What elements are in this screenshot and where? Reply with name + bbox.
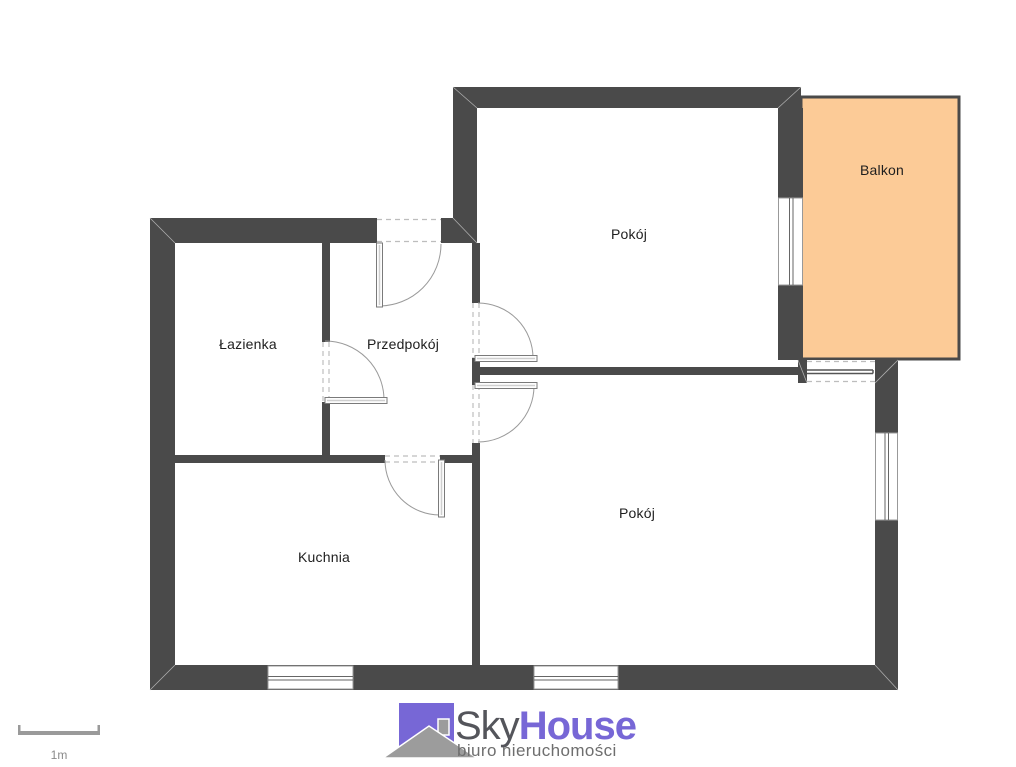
room-label-balcony: Balkon [860,162,904,178]
logo-tagline: biuro nieruchomości [457,742,617,760]
room-label-kitchen: Kuchnia [298,549,350,565]
scale-bar [18,725,100,735]
wall-west [150,218,175,690]
door-kitchen [385,455,445,517]
window-top-room-balcony [779,198,803,285]
floorplan-page: Łazienka Przedpokój Pokój Pokój Kuchnia … [0,0,1016,767]
balcony-area [801,97,959,359]
door-top-room [472,303,537,362]
room-label-bottom-room: Pokój [619,505,655,521]
window-bottom-room-south [534,666,618,689]
balcony-door [807,360,875,383]
wall-south [150,665,898,690]
window-bottom-room-east [876,433,898,520]
window-kitchen-south [268,666,353,689]
floorplan-drawing [0,0,1016,767]
room-label-bathroom: Łazienka [219,336,277,352]
scale-label: 1m [51,748,68,762]
door-bottom-room [472,383,537,444]
room-label-hallway: Przedpokój [367,336,439,352]
wall-east [875,360,898,690]
wall-between-rooms [480,367,798,375]
wall-top-room-north [453,87,801,108]
room-label-top-room: Pokój [611,226,647,242]
door-hall-to-top-room [377,218,442,307]
